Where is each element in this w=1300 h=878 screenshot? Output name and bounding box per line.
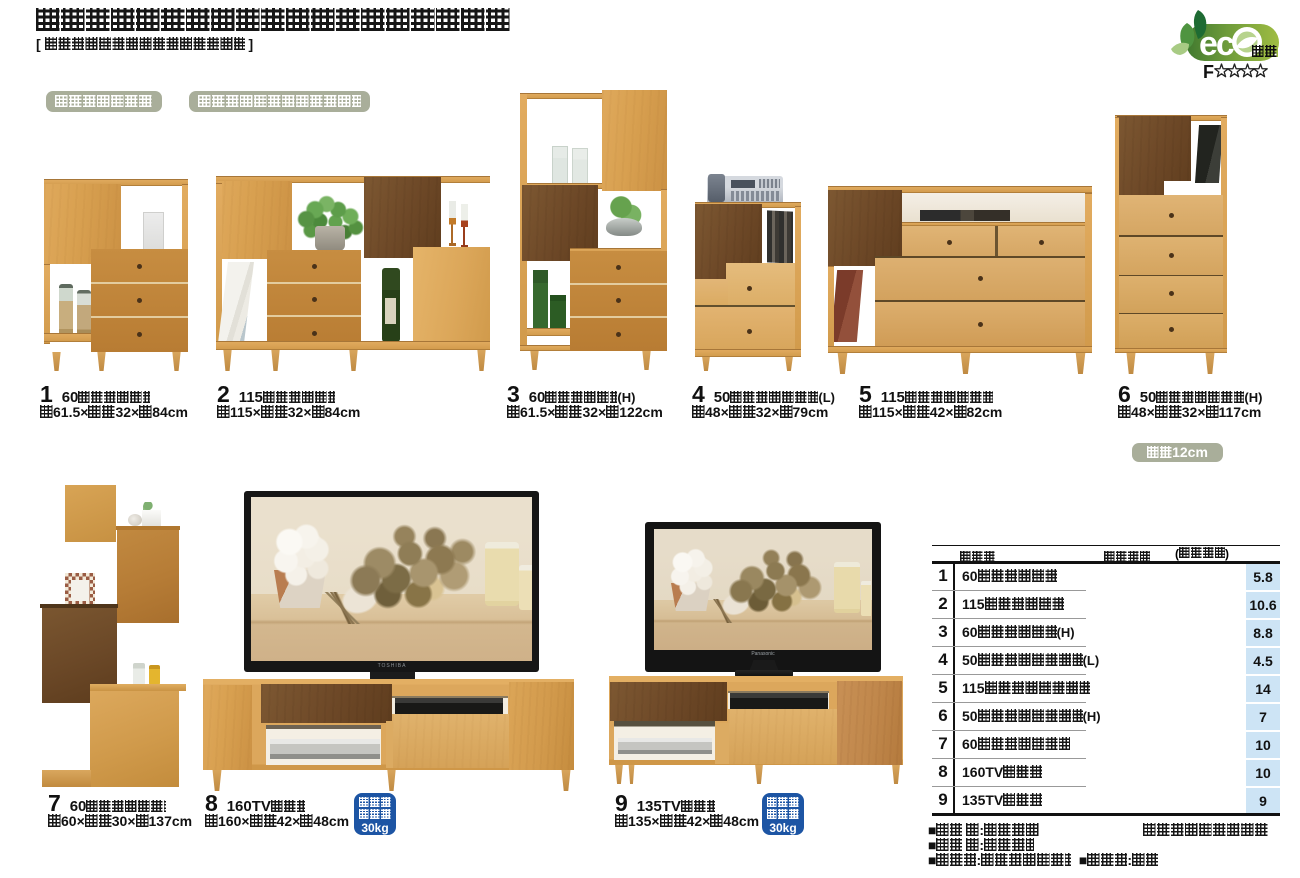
- svg-text:F: F: [1203, 62, 1214, 82]
- svg-text:ec: ec: [1199, 25, 1234, 63]
